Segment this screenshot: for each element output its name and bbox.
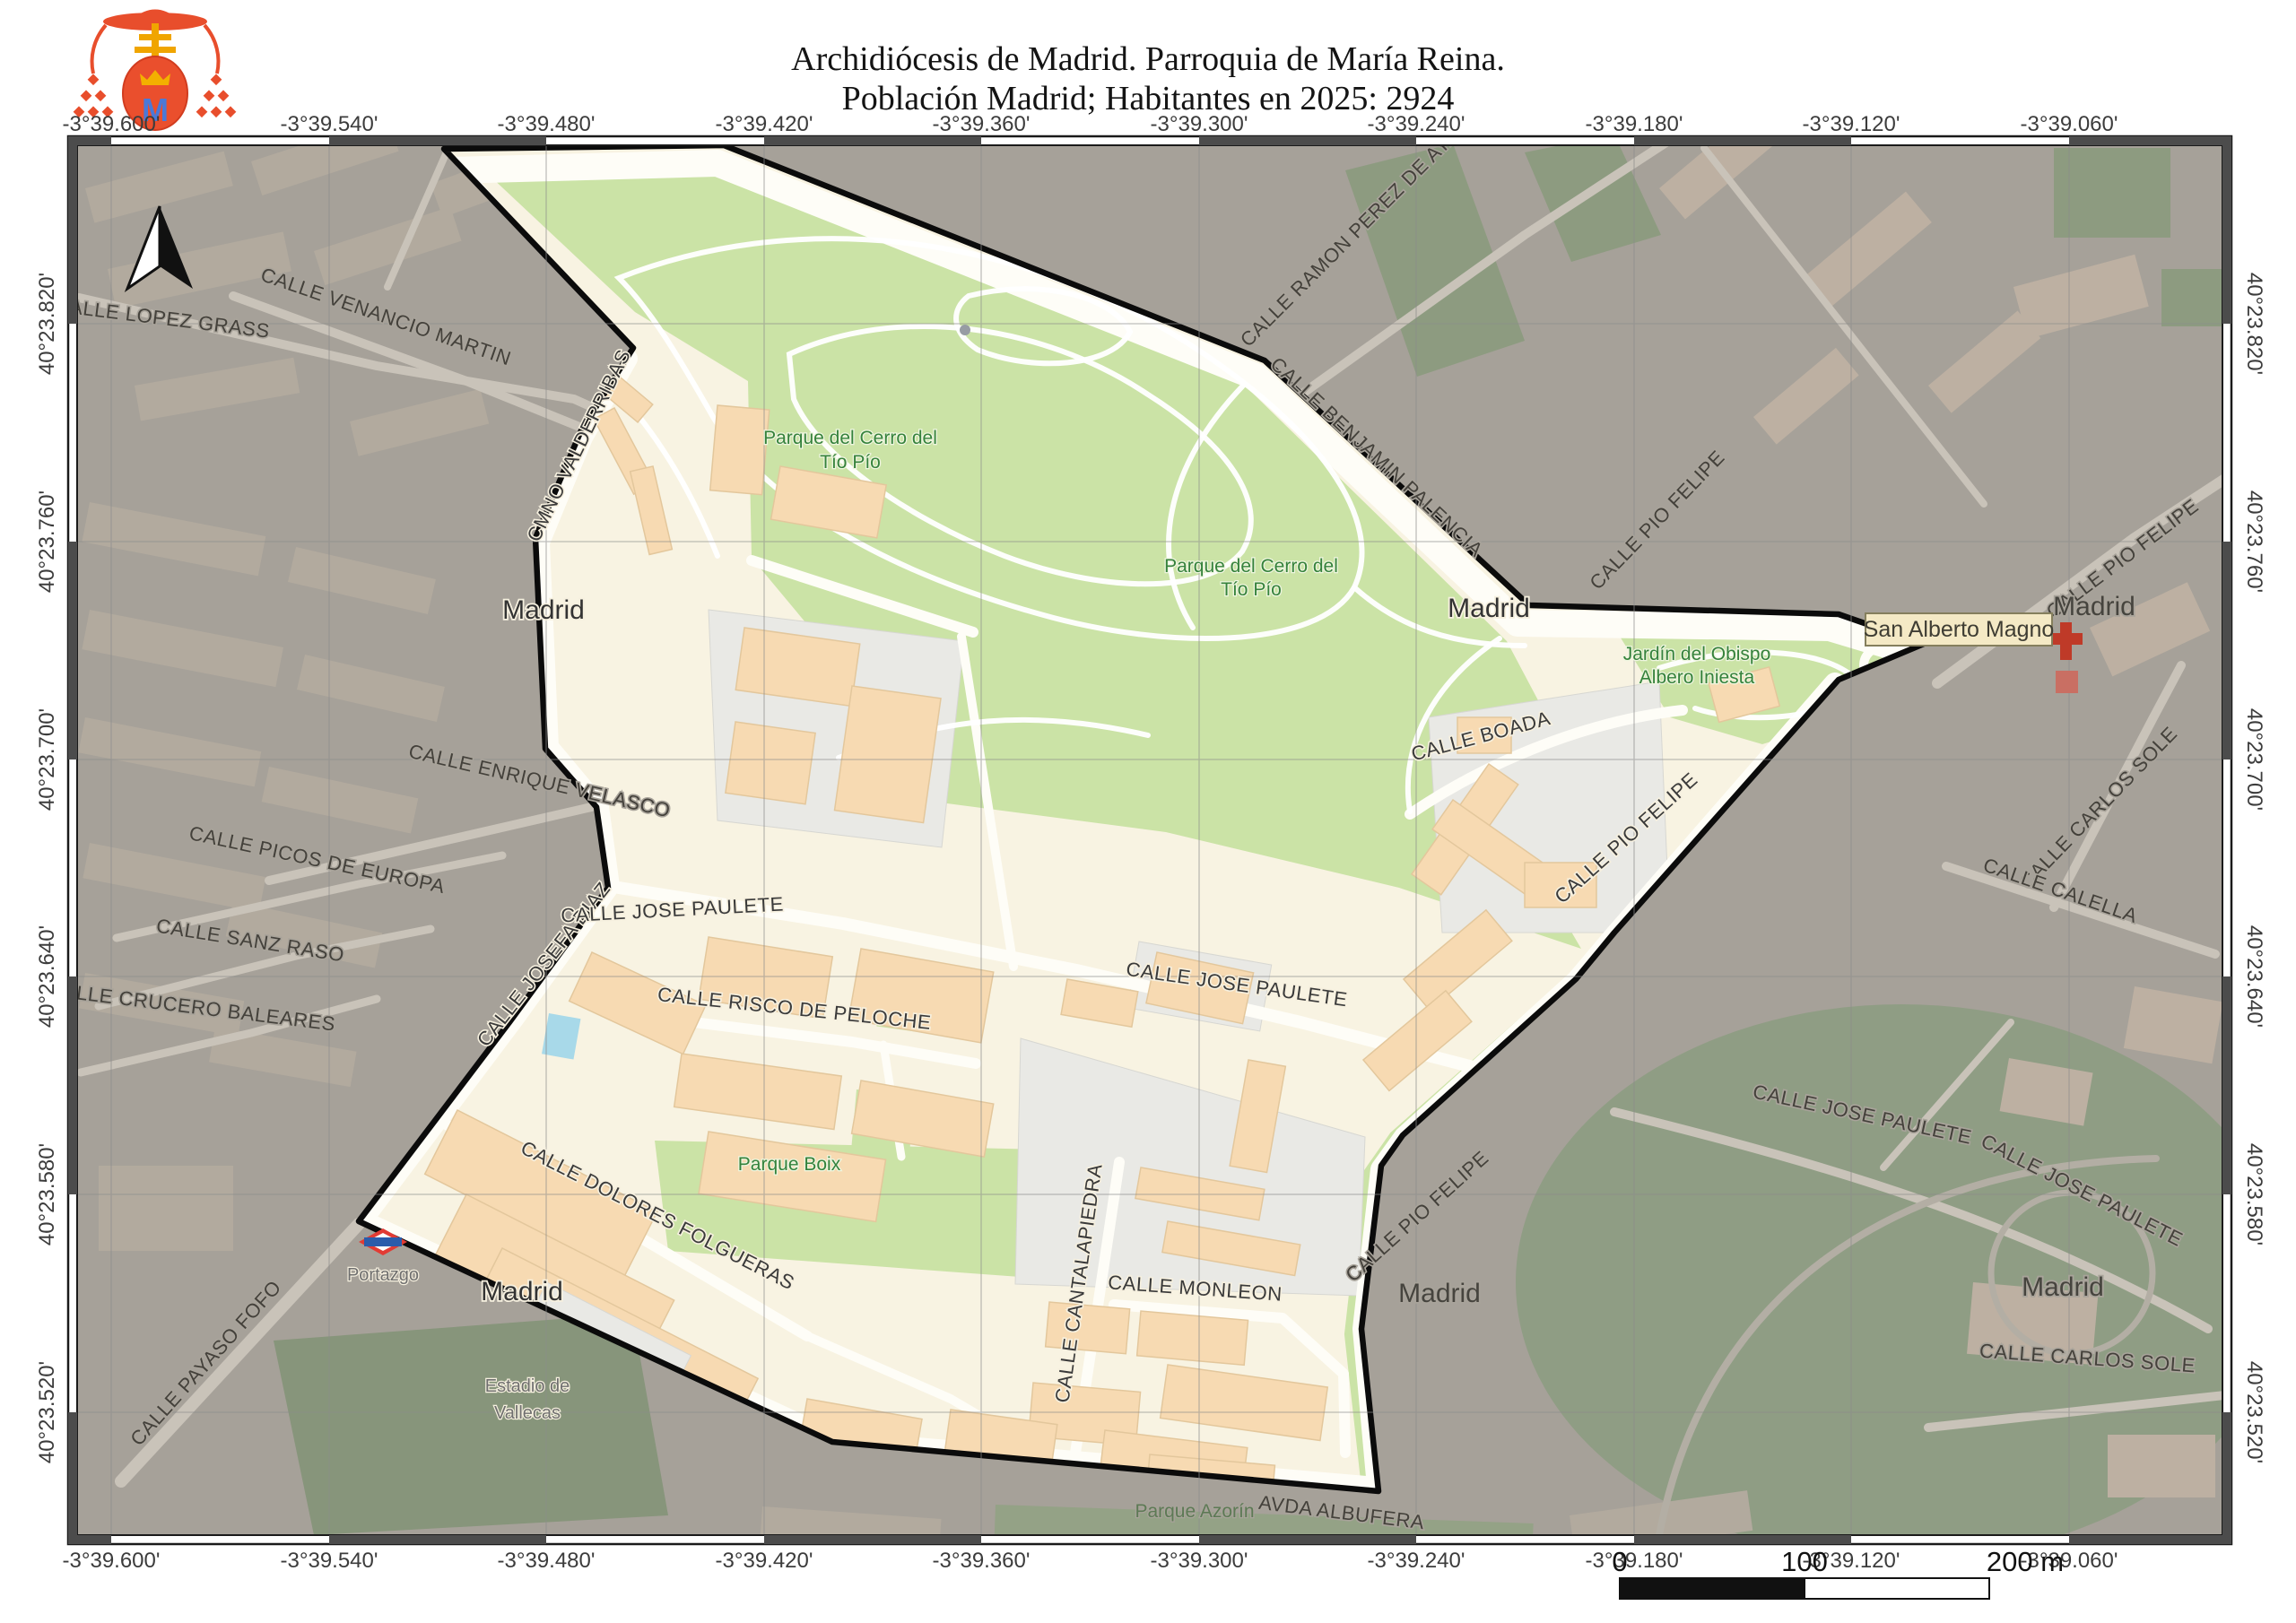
lon-label: -3°39.540' <box>281 112 378 136</box>
lon-label: -3°39.600' <box>63 1549 161 1573</box>
lon-label: -3°39.240' <box>1368 112 1465 136</box>
park-label: Parque Azorín <box>1135 1501 1254 1522</box>
lon-label: -3°39.120' <box>1803 112 1900 136</box>
lon-label: -3°39.300' <box>1151 1549 1248 1573</box>
stadium-label: Estadio de <box>485 1376 570 1396</box>
lon-label: -3°39.420' <box>716 112 813 136</box>
scale-label-start: 0 <box>1612 1546 1627 1577</box>
park-label: Parque del Cerro del <box>1164 556 1338 577</box>
city-label: Madrid <box>481 1277 563 1306</box>
lat-label: 40°23.520' <box>35 1361 59 1463</box>
park-label: Tío Pío <box>820 452 881 473</box>
lon-label: -3°39.300' <box>1151 112 1248 136</box>
scale-label-end: 200 m <box>1987 1546 2064 1577</box>
park-label: Albero Iniesta <box>1639 667 1755 688</box>
lon-label: -3°39.180' <box>1586 1549 1683 1573</box>
park-dot <box>960 325 970 335</box>
lat-label: 40°23.820' <box>2242 273 2266 375</box>
lon-label: -3°39.360' <box>933 112 1031 136</box>
lat-label: 40°23.640' <box>35 925 59 1028</box>
lat-label: 40°23.760' <box>2242 490 2266 593</box>
lat-label: 40°23.580' <box>35 1143 59 1245</box>
lon-label: -3°39.600' <box>63 112 161 136</box>
lon-label: -3°39.480' <box>498 112 596 136</box>
city-label: Madrid <box>1398 1279 1481 1308</box>
lon-label: -3°39.360' <box>933 1549 1031 1573</box>
metro-station-label: Portazgo <box>347 1265 419 1285</box>
scale-label-middle: 100 <box>1781 1546 1828 1577</box>
park-label: Tío Pío <box>1221 579 1282 600</box>
san-alberto-magno-tooltip: San Alberto Magno <box>1864 613 2055 646</box>
map-canvas[interactable]: CALLE LOPEZ GRASS CALLE VENANCIO MARTIN … <box>47 102 2287 1560</box>
estadio-vallecas-field <box>274 1314 668 1535</box>
city-label: Madrid <box>1448 594 1530 623</box>
stadium-label: Vallecas <box>494 1403 561 1423</box>
lon-label: -3°39.480' <box>498 1549 596 1573</box>
lat-label: 40°23.760' <box>35 490 59 593</box>
map-document: Archidiócesis de Madrid. Parroquia de Ma… <box>0 0 2296 1623</box>
lat-label: 40°23.520' <box>2242 1361 2266 1463</box>
lon-label: -3°39.420' <box>716 1549 813 1573</box>
lat-label: 40°23.580' <box>2242 1143 2266 1245</box>
park-label: Parque del Cerro del <box>763 428 937 448</box>
park-label: Jardín del Obispo <box>1623 644 1771 664</box>
lat-label: 40°23.820' <box>35 273 59 375</box>
lat-label: 40°23.640' <box>2242 925 2266 1028</box>
lat-label: 40°23.700' <box>35 708 59 811</box>
park-label: Parque Boix <box>738 1154 841 1175</box>
lon-label: -3°39.180' <box>1586 112 1683 136</box>
city-label: Madrid <box>2022 1272 2104 1302</box>
lon-label: -3°39.540' <box>281 1549 378 1573</box>
tooltip-label: San Alberto Magno <box>1864 617 2055 642</box>
lon-label: -3°39.060' <box>2021 112 2118 136</box>
page-title: Archidiócesis de Madrid. Parroquia de Ma… <box>791 40 1505 78</box>
map-layout: Archidiócesis de Madrid. Parroquia de Ma… <box>0 0 2296 1623</box>
city-label: Madrid <box>502 595 585 625</box>
lon-label: -3°39.240' <box>1368 1549 1465 1573</box>
city-label: Madrid <box>2053 592 2135 621</box>
lat-label: 40°23.700' <box>2242 708 2266 811</box>
